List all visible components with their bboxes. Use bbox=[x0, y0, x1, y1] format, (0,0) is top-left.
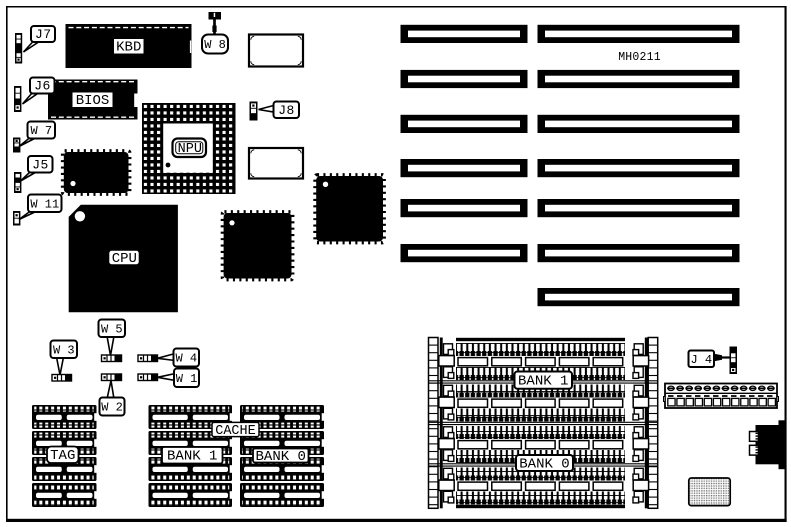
svg-text:W 4: W 4 bbox=[175, 352, 197, 366]
svg-text:BANK 0: BANK 0 bbox=[519, 456, 569, 472]
svg-text:BANK 1: BANK 1 bbox=[167, 449, 217, 465]
svg-text:BIOS: BIOS bbox=[76, 93, 110, 109]
svg-text:MH0211: MH0211 bbox=[618, 51, 661, 64]
svg-text:TAG: TAG bbox=[50, 448, 75, 464]
svg-text:BANK 0: BANK 0 bbox=[256, 449, 306, 465]
svg-text:NPU: NPU bbox=[178, 142, 202, 157]
svg-text:W 7: W 7 bbox=[30, 124, 52, 138]
svg-text:J6: J6 bbox=[34, 79, 51, 94]
svg-text:W 8: W 8 bbox=[204, 38, 226, 52]
svg-text:J7: J7 bbox=[35, 27, 52, 42]
svg-text:J5: J5 bbox=[32, 157, 49, 172]
svg-text:W 2: W 2 bbox=[101, 401, 123, 415]
svg-text:KBD: KBD bbox=[116, 40, 141, 56]
svg-text:W 5: W 5 bbox=[101, 322, 123, 336]
svg-text:CPU: CPU bbox=[112, 251, 137, 267]
svg-text:W 11: W 11 bbox=[30, 197, 59, 211]
svg-text:J 4: J 4 bbox=[690, 353, 712, 367]
svg-text:W 1: W 1 bbox=[176, 372, 198, 386]
svg-text:BANK 1: BANK 1 bbox=[518, 374, 568, 390]
svg-text:W 3: W 3 bbox=[53, 343, 75, 357]
svg-text:CACHE: CACHE bbox=[215, 424, 256, 439]
svg-text:J8: J8 bbox=[278, 103, 295, 118]
